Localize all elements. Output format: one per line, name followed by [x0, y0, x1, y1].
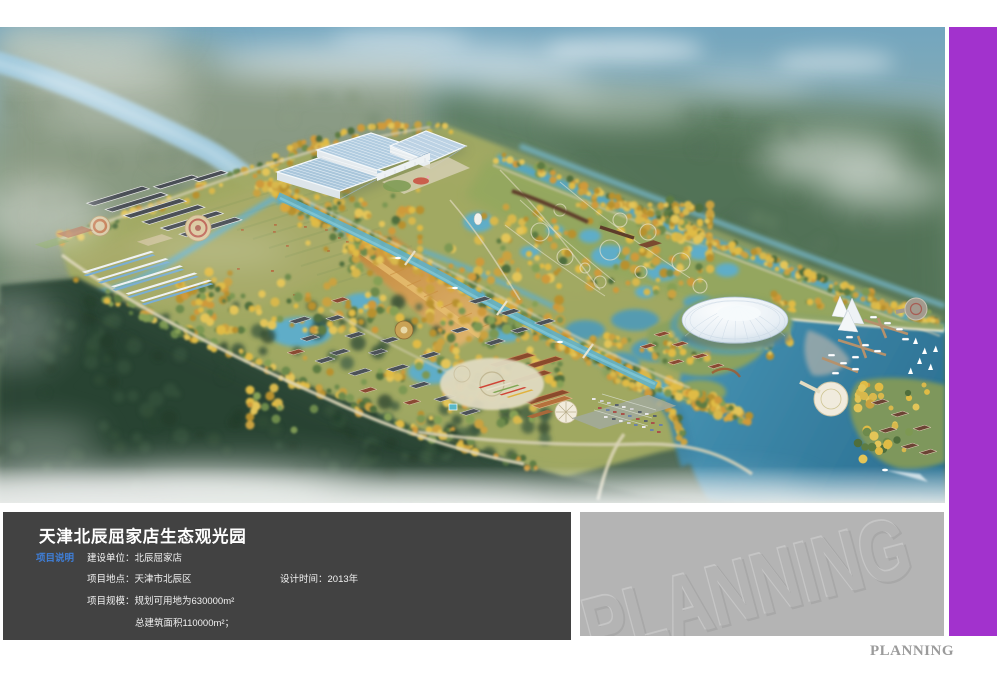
svg-text:PLANNING: PLANNING: [580, 512, 921, 636]
